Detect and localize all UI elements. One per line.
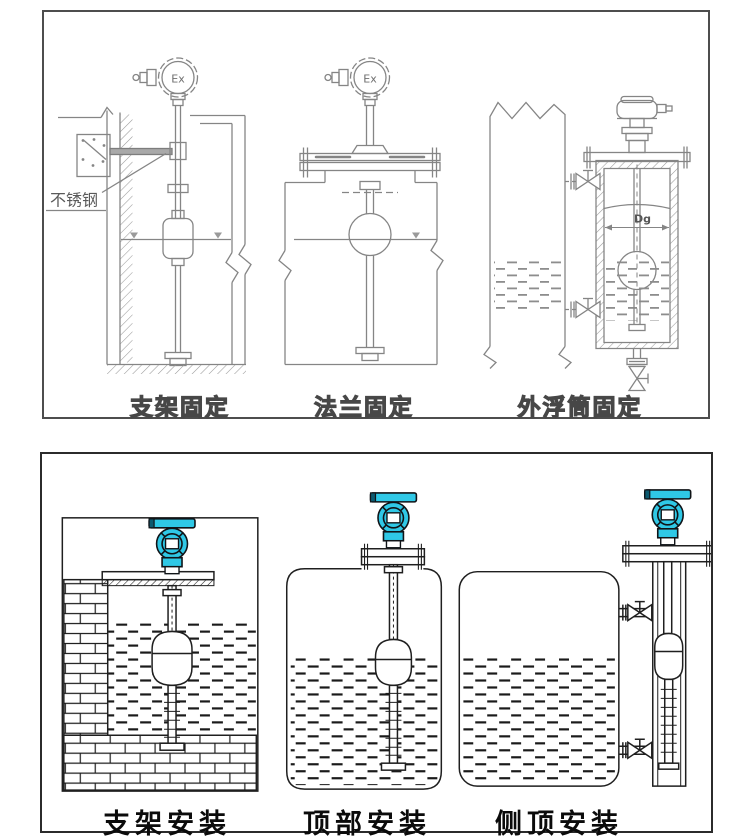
drain-valve-icon [629,362,648,391]
liquid-dashes [291,656,438,785]
float-icon [163,211,193,266]
caption-flange-fixing: 法兰固定 [284,388,444,422]
float-icon [376,640,412,686]
fixing-methods-drawing: 不锈钢 Ex Ex Dg [44,12,708,417]
flange-icon [300,148,440,178]
caption-side-top-installation: 侧顶安装 [475,802,643,840]
bracket-installation-drawing [62,518,257,791]
transmitter-head-icon [645,490,691,545]
valve-icon [623,602,652,621]
installation-methods-panel: 支架安装 顶部安装 侧顶安装 [40,452,713,833]
bracket-shelf [102,572,214,580]
caption-external-chamber-fixing: 外浮筒固定 [480,388,680,422]
stainless-steel-label: 不锈钢 [50,191,98,210]
dg-label: Dg [634,213,651,226]
installation-methods-drawing [42,454,711,831]
flange-fixing-drawing [279,58,443,365]
level-mark [412,233,420,239]
caption-bracket-fixing: 支架固定 [100,388,260,422]
transmitter-head-icon [617,97,672,153]
side-top-installation-drawing [459,490,711,786]
float-icon [152,632,192,686]
external-chamber-fixing-drawing [484,97,690,391]
mounting-plate [77,135,110,177]
bracket-fixing-drawing [46,58,251,374]
ex-marking: Ex [171,73,185,86]
valve-icon [623,739,652,758]
float-icon [655,634,683,680]
shelf-hatch [102,580,214,586]
caption-bracket-installation: 支架安装 [85,802,249,840]
ex-marking: Ex [363,73,377,86]
transmitter-head-icon [371,493,417,548]
fixing-methods-panel: 不锈钢 Ex Ex Dg 支架固定 法兰固定 外浮筒固定 [42,10,710,419]
float-level-transmitter-installation-figure: 不锈钢 Ex Ex Dg 支架固定 法兰固定 外浮筒固定 [0,0,750,840]
top-installation-drawing [287,493,442,789]
liquid-dashes [494,259,561,311]
support-arm [110,149,172,155]
caption-top-installation: 顶部安装 [285,802,449,840]
liquid-dashes [605,259,669,321]
transmitter-head-icon [133,58,198,106]
float-ball-icon [349,214,391,256]
level-mark [214,233,222,239]
liquid-dashes [463,654,615,782]
transmitter-head-icon [325,58,390,106]
